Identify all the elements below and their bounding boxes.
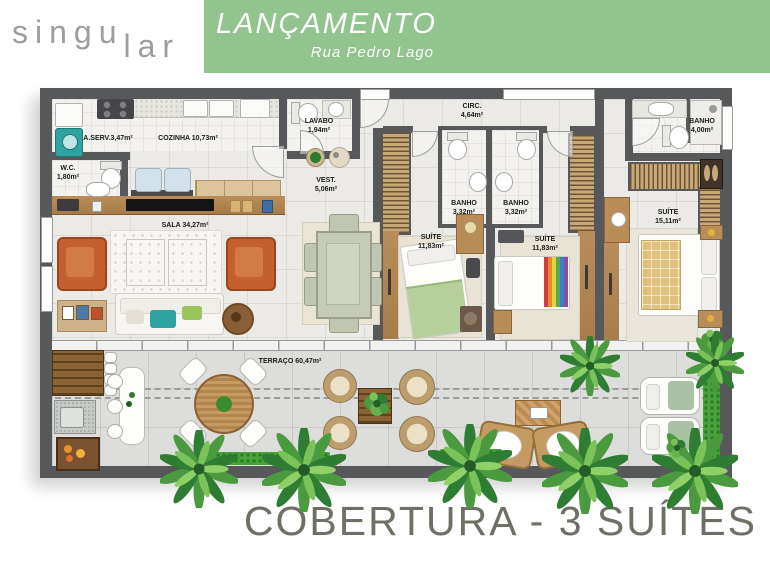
- wall-lavabo-right: [352, 99, 360, 159]
- logo-text-1: singu: [12, 14, 124, 50]
- dining-table: [316, 231, 372, 319]
- window-top: [503, 89, 595, 100]
- wc-sink: [86, 182, 110, 197]
- island-stool-2: [164, 168, 191, 192]
- bar-stool: [107, 374, 123, 389]
- vest-side-table: [329, 147, 350, 168]
- bush-plant: [660, 432, 694, 466]
- palm-plant: [542, 428, 628, 514]
- palm-plant: [428, 424, 512, 508]
- master-shoe-cabinet: [700, 159, 723, 189]
- island-stool-1: [135, 168, 162, 192]
- palm-plant: [160, 430, 238, 508]
- lounge-table: [515, 400, 561, 426]
- vest-plant: [306, 148, 325, 167]
- room-label-vest: VEST. 5,06m²: [304, 176, 348, 194]
- banho1-toilet: [448, 139, 467, 160]
- armchair-left: [57, 237, 107, 291]
- suite1-desk: [456, 214, 484, 254]
- banner-title: LANÇAMENTO: [216, 8, 434, 41]
- master-bed: [638, 234, 720, 316]
- room-label-suite1: SUÍTE 11,83m²: [409, 233, 453, 251]
- wall-corridor-stub1: [383, 126, 413, 133]
- master-closet-doors: [603, 243, 619, 343]
- suite2-bed: [494, 256, 570, 310]
- banner-subtitle: Rua Pedro Lago: [216, 44, 434, 61]
- stove: [97, 99, 134, 119]
- room-label-sala: SALA 34,27m²: [140, 221, 230, 230]
- room-label-banho2: BANHO 3,32m²: [494, 199, 538, 217]
- kitchen-sink-1: [183, 100, 208, 117]
- room-label-terraco: TERRAÇO 60,47m²: [245, 357, 335, 366]
- room-label-wc: W.C. 1,80m²: [52, 164, 84, 182]
- room-label-circ: CIRC. 4,64m²: [450, 102, 494, 120]
- room-label-suite-master: SUÍTE 15,11m²: [646, 208, 690, 226]
- ottoman-1: [126, 239, 165, 286]
- coffee-table: [222, 303, 254, 335]
- kitchen-sink-2: [209, 100, 234, 117]
- suite2-closet-doors: [578, 231, 595, 343]
- launch-banner: LANÇAMENTO Rua Pedro Lago: [204, 0, 770, 73]
- armchair-right: [226, 237, 276, 291]
- room-label-aserv: A.SERV.3,47m²: [83, 134, 133, 143]
- hall-closet: [381, 131, 411, 235]
- washer: [55, 103, 83, 127]
- washing-machine: [55, 128, 83, 157]
- palm-plant: [560, 336, 620, 396]
- suite1-side-table: [460, 306, 482, 332]
- bar-stool: [107, 399, 123, 414]
- window-left-1: [41, 217, 53, 263]
- palm-plant: [686, 334, 744, 392]
- banho2-toilet: [517, 139, 536, 160]
- room-label-banho-master: BANHO 4,00m²: [682, 117, 722, 135]
- bbq-counter: [52, 350, 104, 396]
- suite1-chair: [466, 258, 480, 278]
- sofa: [115, 293, 224, 335]
- bar-stool: [107, 424, 123, 439]
- pouf: [323, 369, 357, 403]
- window-left-2: [41, 266, 53, 312]
- suite2-nightstand: [493, 310, 512, 334]
- room-label-banho1: BANHO 3,32m²: [442, 199, 486, 217]
- room-label-lavabo: LAVABO 1,94m²: [297, 117, 341, 135]
- master-desk: [604, 197, 630, 243]
- room-label-suite2: SUÍTE 11,83m²: [523, 235, 567, 253]
- suite2-dresser: [498, 230, 524, 243]
- lavabo-sink: [328, 102, 344, 117]
- window-right: [722, 106, 733, 150]
- banho1-sink: [469, 172, 487, 192]
- bbq-stool: [104, 363, 117, 374]
- banho2-sink: [495, 172, 513, 192]
- floorplan-page: singular LANÇAMENTO Rua Pedro Lago: [0, 0, 770, 567]
- master-nightstand-1: [700, 225, 723, 240]
- masterbath-sink: [648, 102, 674, 116]
- side-table: [57, 300, 107, 332]
- patio-table: [194, 374, 254, 434]
- terrace-sink: [54, 400, 96, 434]
- ottoman-2: [168, 239, 207, 286]
- wall-suite2-master: [595, 99, 604, 349]
- bbq-stool: [104, 352, 117, 363]
- planter-bush: [356, 384, 398, 426]
- tv-console: [52, 196, 285, 215]
- wall-corridor-stub3: [570, 126, 603, 133]
- wall-bottom: [40, 466, 732, 478]
- grill: [56, 437, 100, 471]
- logo-text-2: lar: [124, 28, 181, 65]
- suite1-closet-doors: [381, 231, 399, 339]
- palm-plant: [262, 428, 346, 512]
- room-label-cozinha: COZINHA 10,73m²: [148, 134, 228, 143]
- fridge: [240, 99, 270, 118]
- master-closet-top: [628, 162, 704, 191]
- brand-logo: singular: [12, 14, 180, 51]
- pouf: [399, 369, 435, 405]
- wall-kitchen-lavabo: [279, 99, 287, 149]
